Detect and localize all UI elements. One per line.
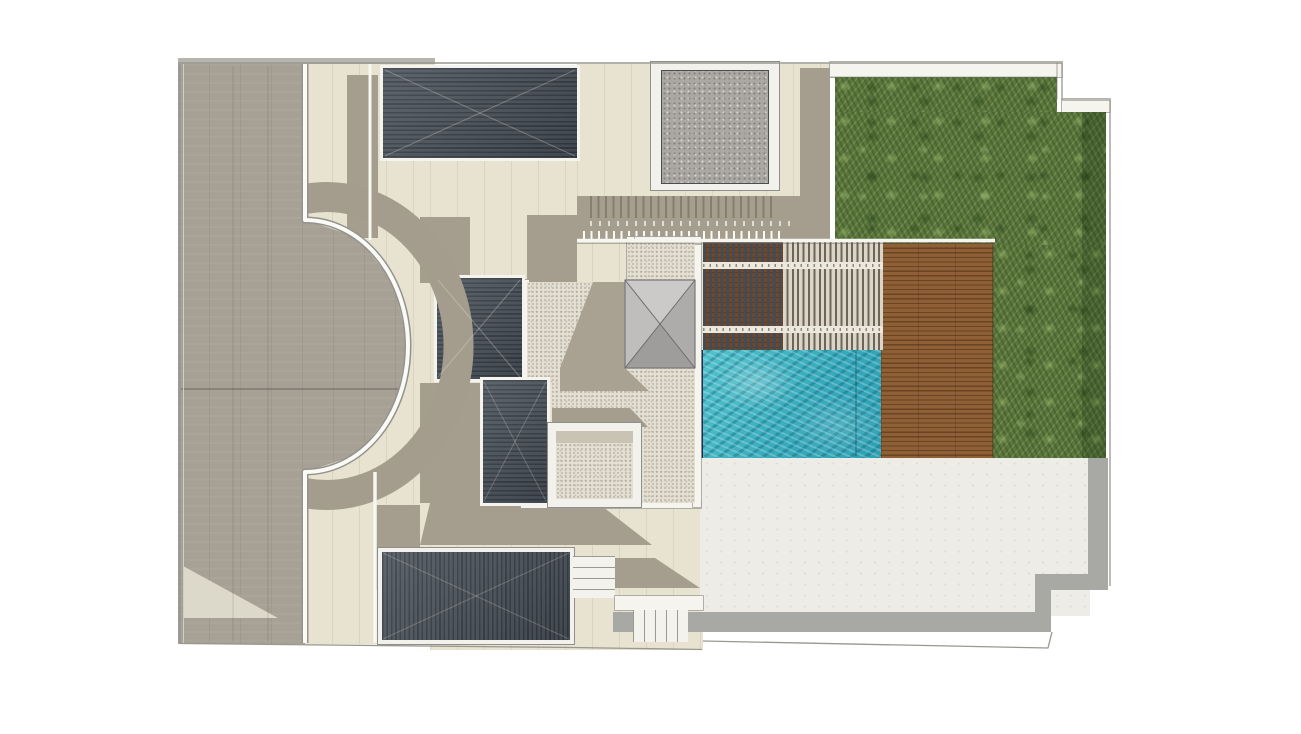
garden-boundary-wall-top xyxy=(830,62,1062,77)
roof-2 xyxy=(437,278,522,379)
terrace-border-right xyxy=(1088,458,1108,576)
site-plan xyxy=(0,0,1301,734)
roof-1-main xyxy=(383,68,577,158)
pergola-light-slats xyxy=(783,242,883,350)
boundary-bottom-right xyxy=(703,632,1052,648)
terrace-dotted-joint-row xyxy=(590,221,790,226)
garden-dark-edge xyxy=(1082,112,1106,458)
shadow-col-right-of-patio xyxy=(800,68,830,196)
garden-upper-band xyxy=(835,77,1057,112)
roof-3 xyxy=(483,380,547,503)
swimming-pool xyxy=(703,350,881,458)
stairs-landing xyxy=(615,596,703,610)
terrace-border-step-2 xyxy=(1035,588,1051,614)
small-court-inner-shadow xyxy=(556,431,633,443)
pergola-dark-slats xyxy=(703,242,783,350)
stairs-horizontal xyxy=(573,556,615,598)
lower-terrace xyxy=(700,458,1090,616)
path-shadow-stripe-top xyxy=(347,75,378,238)
roof-4 xyxy=(382,552,570,640)
wood-deck xyxy=(881,243,993,458)
shadow-above-roof2 xyxy=(420,217,470,283)
stairs-vertical xyxy=(633,610,688,642)
patio-granite-inner xyxy=(661,70,769,184)
shadow-courtyard-top-left xyxy=(527,215,577,287)
garden-main xyxy=(835,112,1106,245)
shadow-left-of-roof3 xyxy=(420,383,483,503)
pergola-beam-upper xyxy=(703,262,883,269)
fence-shadow-comb xyxy=(590,196,775,218)
garden-boundary-wall-notch xyxy=(1062,99,1110,112)
pergola-beam-lower xyxy=(703,326,883,333)
